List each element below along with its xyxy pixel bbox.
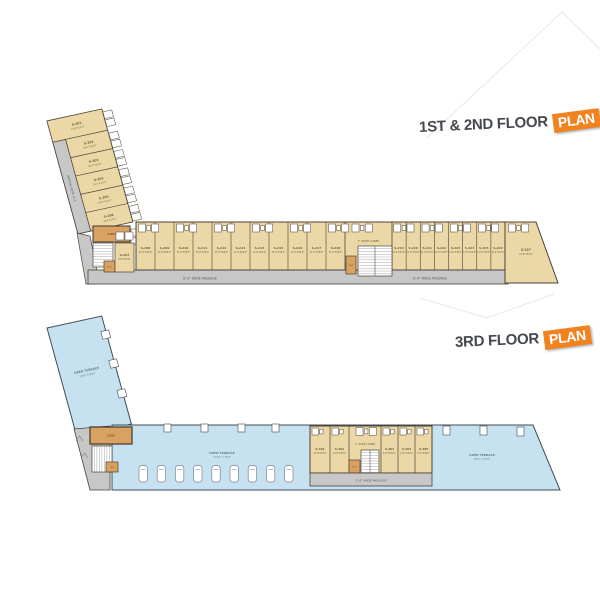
toilet-box: [450, 224, 457, 232]
unit-id: S-208: [141, 246, 151, 250]
toilet-box: [522, 224, 529, 232]
unit-dim: 11'0"X30'0": [421, 251, 434, 254]
toilet-box: [337, 225, 341, 230]
plan2-left-wing: OPEN TERRACE30'0" X 80'0": [47, 315, 134, 436]
unit-dim: 11'0"X30'0": [234, 251, 248, 254]
lobby-label: 7' WIDE LOBBY: [355, 442, 376, 446]
unit-dim: 11'0"X30'0": [333, 452, 346, 455]
unit-id: S-305: [419, 447, 428, 451]
unit-dim: 11'0"X30'0": [329, 251, 343, 254]
column: [480, 426, 487, 435]
toilet-box: [509, 224, 516, 232]
unit-dim: 11'0"X30'0": [417, 452, 430, 455]
unit-id: S-222: [437, 246, 446, 250]
lift-label: LIFT: [352, 467, 357, 469]
toilet-box: [312, 428, 319, 435]
unit-dim: 11'0"X30'0": [463, 251, 476, 254]
lobby-label: 7' WIDE LOBBY: [358, 239, 380, 243]
unit-id: S-227: [521, 248, 531, 252]
unit-id: S-207: [120, 253, 130, 257]
unit-dim: 11'0"X30'0": [491, 251, 504, 254]
toilet-box: [417, 428, 424, 435]
toilet-box: [139, 224, 146, 232]
toilet-box: [215, 224, 222, 232]
toilet-box: [291, 224, 298, 232]
column: [238, 424, 245, 432]
passage-label: 8'-0" WIDE PASSAGE: [183, 277, 217, 281]
terrace-label: OPEN TERRACE: [469, 453, 495, 457]
toilet-box: [109, 131, 120, 140]
unit-id: S-211: [198, 246, 208, 250]
floor-plan-canvas: S-20121'6"X10'0"S-20220'0"X10'0"S-20320'…: [0, 0, 600, 600]
toilet-box: [111, 139, 122, 148]
toilet-box: [435, 224, 442, 232]
toilet-box: [356, 428, 363, 436]
toilet-box: [459, 225, 463, 230]
lift-label: LIFT: [349, 265, 354, 267]
terrace-dim: 50'0" X 35'0": [474, 457, 491, 461]
unit-dim: 11'0"X30'0": [313, 452, 326, 455]
passage-label: 8'-0" WIDE PASSAGE: [413, 277, 447, 281]
toilet-box: [408, 429, 411, 434]
unit-id: S-224: [465, 246, 474, 250]
unit-dim: 11'0"X30'0": [477, 251, 490, 254]
unit-id: S-210: [179, 246, 189, 250]
unit-dim: 11'0"X30'0": [407, 251, 420, 254]
unit-id: S-226: [493, 246, 502, 250]
unit-id: S-304: [402, 447, 411, 451]
unit-dim: 11'0"X30'0": [400, 452, 413, 455]
toilet-box: [116, 157, 127, 166]
toilet-box: [332, 428, 339, 435]
unit-id: S-214: [255, 246, 265, 250]
column: [201, 424, 208, 432]
toilet-box: [152, 224, 159, 232]
watermark-line: [420, 294, 554, 318]
car-icon: [285, 466, 293, 483]
toilet-box: [299, 225, 303, 230]
car-icon: [248, 466, 256, 483]
car-icon: [266, 466, 274, 483]
toilet-box: [121, 176, 132, 185]
toilet-box: [119, 168, 130, 177]
unit-dim: 11'0"X30'0": [383, 452, 396, 455]
plan2-title-tag: PLAN: [543, 325, 592, 350]
toilet-box: [125, 232, 133, 240]
toilet-box: [105, 118, 116, 127]
unit-id: S-301: [315, 447, 324, 451]
toilet-box: [365, 224, 372, 232]
toilet-box: [402, 225, 406, 230]
toilet-box: [320, 429, 323, 434]
toilet-box: [430, 225, 434, 230]
unit-id: S-215: [274, 246, 284, 250]
lobby-label: LOBBY: [107, 434, 116, 438]
toilet-box: [391, 429, 394, 434]
car-icon: [194, 466, 202, 483]
unit-dim: 11'0"X30'0": [139, 251, 153, 254]
toilet-box: [253, 224, 260, 232]
toilet-box: [124, 186, 135, 195]
unit-dim: 11'0"X30'0": [449, 251, 462, 254]
toilet-box: [407, 224, 414, 232]
toilet-box: [425, 429, 428, 434]
unit-id: S-303: [385, 447, 394, 451]
car-icon: [157, 466, 165, 483]
unit-dim: 11'0"X30'0": [272, 251, 286, 254]
unit-id: S-213: [236, 246, 246, 250]
unit-dim: 11'0"X30'0": [177, 251, 191, 254]
unit-dim: 11'0"X30'0": [291, 251, 305, 254]
toilet-box: [364, 429, 368, 434]
toilet-box: [228, 224, 235, 232]
toilet-box: [329, 224, 336, 232]
toilet-box: [126, 194, 137, 203]
unit-id: S-216: [293, 246, 303, 250]
unit-id: S-225: [479, 246, 488, 250]
unit-dim: 11'0"X30'0": [310, 251, 324, 254]
unit-id: S-218: [331, 246, 341, 250]
car-icon: [175, 466, 183, 483]
toilet-box: [394, 224, 401, 232]
column: [272, 424, 279, 432]
unit-id: S-223: [451, 246, 460, 250]
toilet-box: [147, 225, 151, 230]
toilet-box: [383, 428, 390, 435]
toilet-box: [103, 110, 114, 119]
car-icon: [212, 466, 220, 483]
toilet-box: [129, 204, 140, 213]
toilet-box: [369, 428, 376, 436]
unit-id: S-209: [160, 246, 170, 250]
plan1-left-wing: S-20121'6"X10'0"S-20220'0"X10'0"S-20320'…: [47, 107, 142, 234]
lift-label: LIFT: [110, 467, 115, 469]
toilet-box: [190, 224, 197, 232]
unit-id: S-221: [423, 246, 432, 250]
toilet-box: [223, 225, 227, 230]
lobby-label: LOBBY: [107, 232, 116, 236]
toilet-box: [464, 224, 471, 232]
toilet-box: [479, 224, 486, 232]
toilet-box: [487, 225, 491, 230]
toilet-box: [352, 224, 359, 232]
unit-dim: 8'0"X16'6": [118, 258, 130, 261]
toilet-box: [492, 224, 499, 232]
toilet-box: [304, 224, 311, 232]
column: [443, 426, 450, 435]
toilet-box: [266, 224, 273, 232]
unit-id: S-217: [312, 246, 322, 250]
floor-plan-drawing: S-20121'6"X10'0"S-20220'0"X10'0"S-20320'…: [0, 0, 600, 600]
unit-id: S-219: [394, 246, 403, 250]
toilet-box: [261, 225, 265, 230]
terrace-dim: 115'0" X 35'0": [213, 455, 231, 459]
unit-dim: 11'0"X30'0": [435, 251, 448, 254]
unit-dim: 11'0"X30'0": [158, 251, 172, 254]
unit-id: S-302: [335, 447, 344, 451]
terrace-label: OPEN TERRACE: [209, 451, 235, 455]
unit-dim: 21'6"X30'0": [519, 253, 533, 256]
toilet-box: [342, 224, 349, 232]
column: [517, 427, 524, 436]
toilet-box: [114, 149, 125, 158]
column: [164, 424, 171, 432]
car-icon: [139, 466, 147, 483]
plan1-title-tag: PLAN: [552, 108, 600, 133]
passage-label: 5'-0" WIDE PASSAGE: [356, 479, 387, 483]
lift-label: LIFT: [107, 267, 112, 269]
unit-dim: 11'0"X30'0": [253, 251, 267, 254]
toilet-box: [131, 212, 142, 221]
column: [101, 330, 111, 339]
toilet-box: [177, 224, 184, 232]
column: [117, 389, 127, 398]
toilet-box: [422, 224, 429, 232]
toilet-box: [360, 225, 364, 230]
plan2-title-text: 3RD FLOOR: [455, 330, 540, 351]
toilet-box: [116, 232, 124, 240]
unit-id: S-220: [409, 246, 418, 250]
toilet-box: [185, 225, 189, 230]
unit-dim: 11'0"X30'0": [215, 251, 229, 254]
toilet-box: [517, 225, 521, 230]
unit-id: S-212: [217, 246, 227, 250]
column: [109, 359, 119, 368]
toilet-box: [340, 429, 343, 434]
toilet-box: [400, 428, 407, 435]
car-icon: [230, 466, 238, 483]
unit-dim: 11'0"X30'0": [196, 251, 210, 254]
unit-dim: 11'0"X30'0": [393, 251, 406, 254]
